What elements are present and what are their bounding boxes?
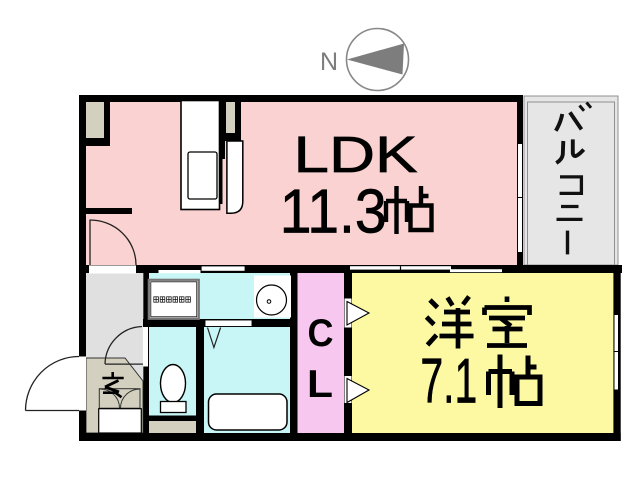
svg-text:7.1: 7.1 [420, 346, 477, 416]
svg-text:N: N [320, 48, 338, 76]
svg-text:C: C [308, 312, 334, 355]
svg-text:11.3: 11.3 [280, 178, 387, 247]
svg-text:LDK: LDK [294, 126, 418, 183]
svg-text:L: L [307, 363, 333, 406]
